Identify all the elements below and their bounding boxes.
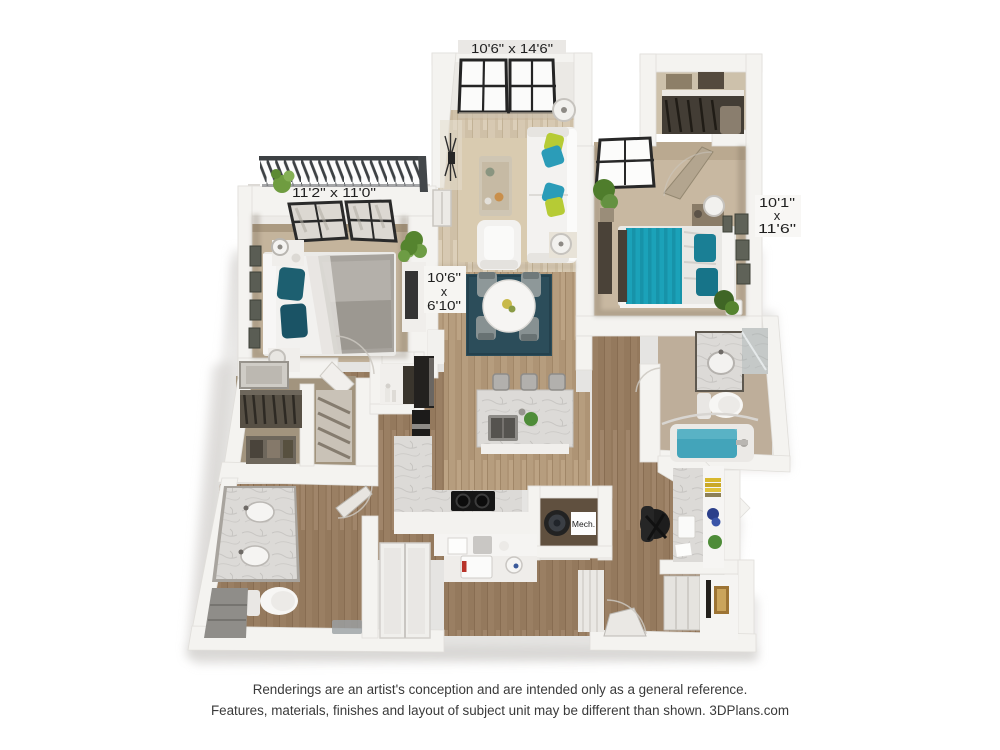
- svg-text:Mech.: Mech.: [572, 519, 595, 529]
- svg-text:11'2" x 11'0": 11'2" x 11'0": [292, 185, 376, 200]
- svg-text:x: x: [441, 285, 448, 299]
- svg-text:11'6": 11'6": [758, 221, 797, 236]
- svg-text:6'10": 6'10": [427, 299, 461, 313]
- svg-text:10'6" x 14'6": 10'6" x 14'6": [471, 41, 553, 56]
- svg-text:10'6": 10'6": [427, 271, 461, 285]
